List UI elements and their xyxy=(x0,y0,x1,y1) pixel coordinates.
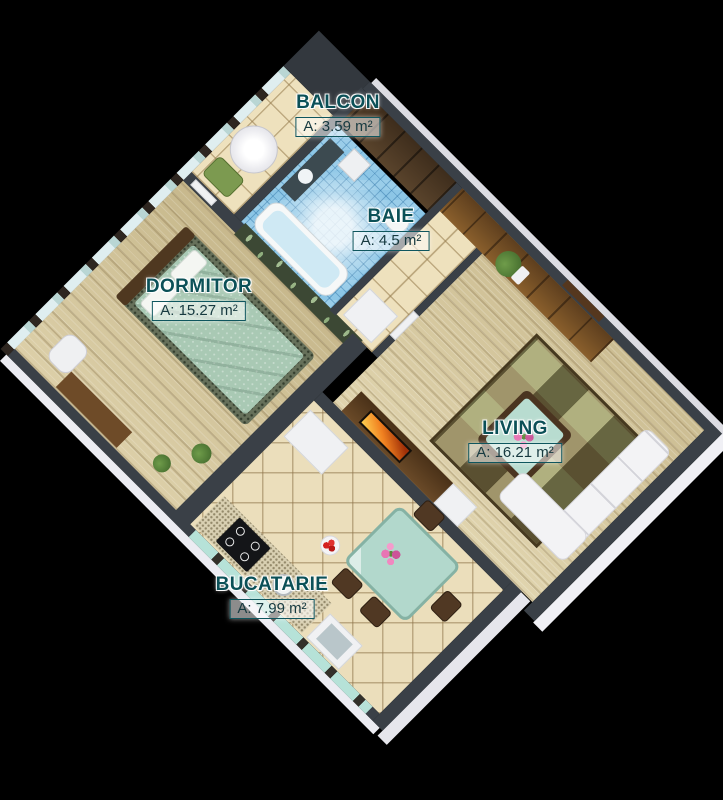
room-label-dormitor: DORMITOR A: 15.27 m² xyxy=(146,276,252,321)
room-name-living: LIVING xyxy=(468,418,562,440)
room-label-living: LIVING A: 16.21 m² xyxy=(468,418,562,463)
room-area-bucatarie: A: 7.99 m² xyxy=(229,599,314,619)
room-name-bucatarie: BUCATARIE xyxy=(216,574,329,596)
room-area-baie: A: 4.5 m² xyxy=(353,231,430,251)
apartment-plan-3d xyxy=(1,31,723,754)
floor-plan-canvas: BALCON A: 3.59 m² BAIE A: 4.5 m² DORMITO… xyxy=(0,0,723,800)
room-label-balcon: BALCON A: 3.59 m² xyxy=(295,92,380,137)
room-area-balcon: A: 3.59 m² xyxy=(295,117,380,137)
room-name-dormitor: DORMITOR xyxy=(146,276,252,298)
room-area-dormitor: A: 15.27 m² xyxy=(152,301,246,321)
room-label-baie: BAIE A: 4.5 m² xyxy=(353,206,430,251)
room-label-bucatarie: BUCATARIE A: 7.99 m² xyxy=(216,574,329,619)
room-area-living: A: 16.21 m² xyxy=(468,443,562,463)
room-name-balcon: BALCON xyxy=(295,92,380,114)
room-name-baie: BAIE xyxy=(353,206,430,228)
